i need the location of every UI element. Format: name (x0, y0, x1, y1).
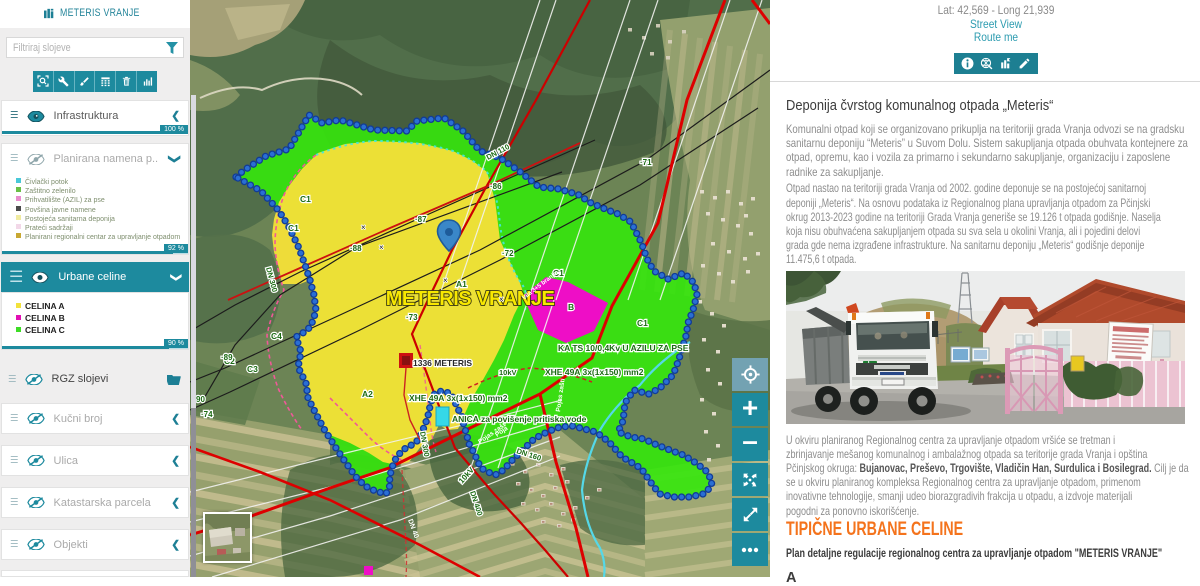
svg-text:·86: ·86 (490, 182, 502, 191)
svg-text:B: B (568, 302, 574, 312)
svg-text:C1: C1 (300, 194, 311, 204)
svg-text:×: × (379, 243, 384, 252)
svg-text:C1: C1 (637, 318, 648, 328)
svg-text:1336 METERIS: 1336 METERIS (413, 358, 472, 368)
svg-text:·71: ·71 (640, 158, 652, 167)
svg-text:·74: ·74 (201, 410, 213, 419)
svg-text:XHE 49A 3x(1x150) mm2: XHE 49A 3x(1x150) mm2 (545, 367, 644, 377)
svg-text:·87: ·87 (415, 215, 427, 224)
svg-text:A2: A2 (362, 389, 373, 399)
svg-text:·89: ·89 (221, 353, 233, 362)
svg-text:C1: C1 (288, 223, 299, 233)
svg-text:ANICA za povišenje pritiska vo: ANICA za povišenje pritiska vode (452, 414, 587, 424)
svg-text:10kV: 10kV (499, 368, 517, 377)
svg-text:·73: ·73 (406, 313, 418, 322)
svg-text:×: × (499, 295, 504, 304)
svg-text:×: × (443, 276, 448, 285)
svg-text:XHE 49A 3x(1x150) mm2: XHE 49A 3x(1x150) mm2 (409, 393, 508, 403)
svg-text:×: × (361, 223, 366, 232)
svg-text:C4: C4 (271, 331, 282, 341)
svg-text:KA TS 10/0,4Kv U AZILU ZA PSE: KA TS 10/0,4Kv U AZILU ZA PSE (558, 343, 689, 353)
svg-text:·88: ·88 (350, 244, 362, 253)
svg-text:C3: C3 (247, 364, 258, 374)
svg-text:·72: ·72 (502, 249, 514, 258)
svg-text:A1: A1 (456, 279, 467, 289)
svg-text:90: 90 (196, 395, 205, 404)
